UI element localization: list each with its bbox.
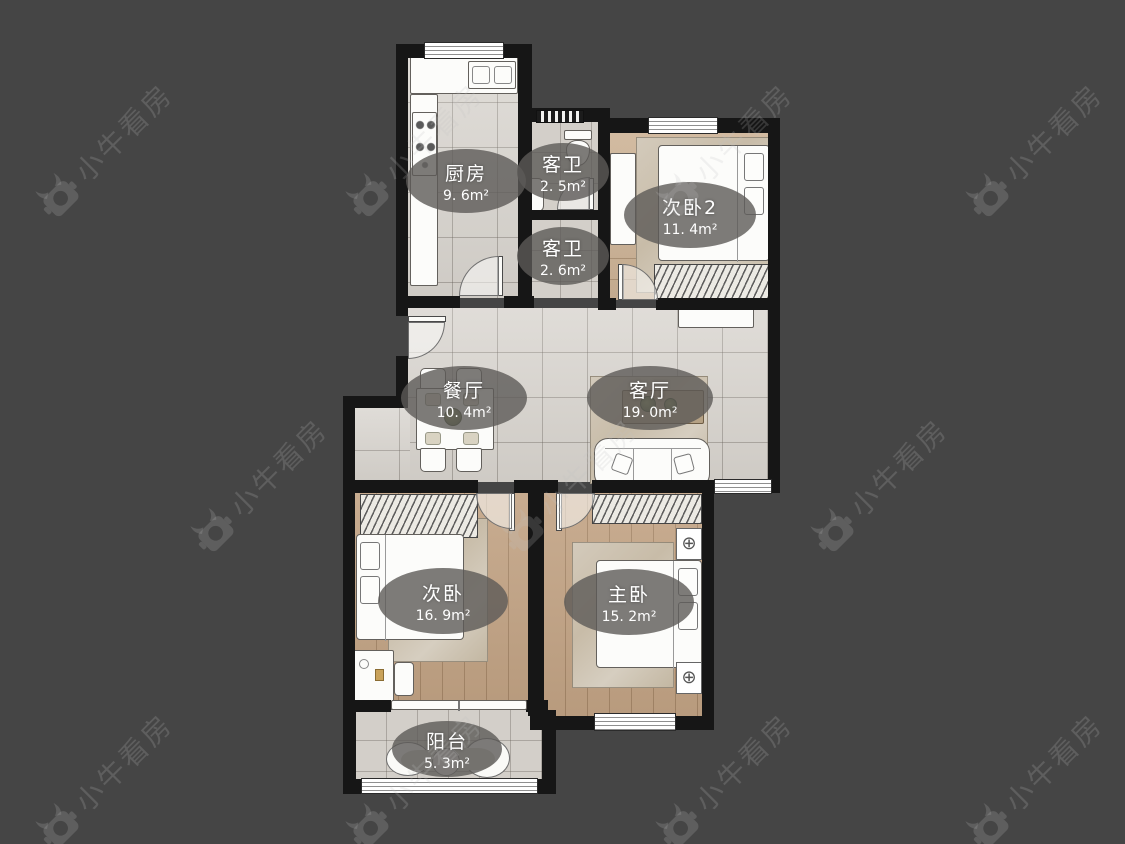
bull-logo-icon bbox=[183, 500, 245, 562]
room-label-master: 主卧 15. 2m² bbox=[564, 569, 694, 635]
wall bbox=[343, 396, 355, 493]
floorplan-stage: ⊕ ⊕ bbox=[0, 0, 1125, 844]
watermark: 小牛看房 bbox=[28, 703, 183, 844]
wall bbox=[702, 480, 714, 730]
bedroom-pillow bbox=[360, 542, 380, 570]
wall bbox=[343, 700, 356, 794]
kitchen-window bbox=[424, 42, 504, 59]
bull-logo-icon bbox=[28, 165, 90, 227]
dining-chair bbox=[420, 448, 446, 472]
room-label-kitchen: 厨房 9. 6m² bbox=[406, 149, 526, 213]
master-nightstand: ⊕ bbox=[676, 662, 702, 694]
room-label-balcony: 阳台 5. 3m² bbox=[392, 721, 502, 777]
bedroom2-window bbox=[648, 117, 718, 134]
dining-chair bbox=[456, 448, 482, 472]
wall bbox=[530, 716, 594, 730]
balcony-sliding-door bbox=[391, 700, 527, 710]
kitchen-sink bbox=[468, 61, 516, 89]
desk bbox=[352, 650, 394, 702]
master-wardrobe bbox=[592, 494, 702, 524]
bedroom-wardrobe bbox=[360, 494, 478, 538]
watermark: 小牛看房 bbox=[803, 408, 958, 563]
wall bbox=[528, 493, 544, 716]
wall bbox=[514, 480, 558, 493]
bull-logo-icon bbox=[958, 795, 1020, 844]
wall bbox=[542, 710, 556, 794]
room-label-living: 客厅 19. 0m² bbox=[587, 366, 713, 430]
bath-window bbox=[536, 110, 584, 123]
wall bbox=[598, 108, 610, 310]
balcony-window bbox=[361, 778, 538, 794]
dining-notch-floor bbox=[355, 406, 410, 482]
bull-logo-icon bbox=[338, 165, 400, 227]
toilet-tank bbox=[564, 130, 592, 140]
room-label-dining: 餐厅 10. 4m² bbox=[401, 366, 527, 430]
desk-chair bbox=[394, 662, 414, 696]
bedroom2-wardrobe bbox=[654, 264, 770, 300]
master-window bbox=[594, 713, 676, 731]
wall bbox=[656, 298, 780, 310]
wall bbox=[343, 480, 478, 493]
watermark: 小牛看房 bbox=[958, 73, 1113, 228]
watermark: 小牛看房 bbox=[28, 73, 183, 228]
wall bbox=[343, 480, 355, 712]
room-label-bath-upper: 客卫 2. 5m² bbox=[517, 143, 609, 201]
bedroom2-pillow bbox=[744, 153, 764, 181]
bull-logo-icon bbox=[648, 795, 710, 844]
bull-logo-icon bbox=[28, 795, 90, 844]
watermark: 小牛看房 bbox=[958, 703, 1113, 844]
bull-logo-icon bbox=[803, 500, 865, 562]
wall bbox=[592, 480, 714, 493]
room-label-bedroom2: 次卧2 11. 4m² bbox=[624, 182, 756, 248]
bedroom-pillow bbox=[360, 576, 380, 604]
room-label-bedroom: 次卧 16. 9m² bbox=[378, 568, 508, 634]
wall bbox=[768, 118, 780, 493]
watermark: 小牛看房 bbox=[183, 408, 338, 563]
bull-logo-icon bbox=[338, 795, 400, 844]
tv-cabinet bbox=[678, 308, 754, 328]
living-window bbox=[714, 479, 772, 494]
bull-logo-icon bbox=[958, 165, 1020, 227]
room-label-bath-lower: 客卫 2. 6m² bbox=[517, 227, 609, 285]
master-nightstand: ⊕ bbox=[676, 528, 702, 560]
